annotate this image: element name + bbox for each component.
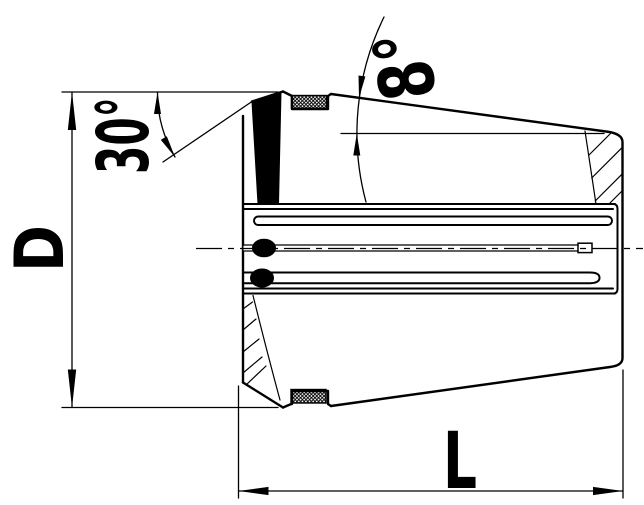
lip-hatch-5	[247, 366, 267, 385]
back-ring-boundary	[585, 131, 596, 204]
technical-drawing-canvas: D 30° 8° L	[0, 0, 644, 505]
lip-hatch-1	[243, 302, 253, 309]
diameter-label: D	[1, 225, 80, 272]
back-hatch-3	[595, 174, 622, 201]
back-hatch-4	[609, 191, 623, 205]
length-label: L	[443, 417, 477, 505]
dimension-chamfer-angle: 30°	[82, 92, 252, 174]
dimension-taper-angle: 8°	[341, 17, 604, 202]
front-slot-section-fill	[252, 93, 281, 205]
lip-inner-curve	[253, 296, 280, 401]
d-arrow-up	[68, 92, 76, 130]
back-hatch-2	[592, 147, 623, 178]
slot-lower	[244, 273, 600, 284]
back-hatch-1	[589, 133, 611, 155]
taper-arc-arrow-lower	[353, 134, 360, 156]
l-arrow-right	[593, 487, 623, 495]
slot-hole-lower	[251, 269, 274, 287]
taper-angle-label: 8°	[356, 26, 454, 106]
l-arrow-left	[239, 487, 269, 495]
collet-slots	[244, 217, 613, 288]
d-arrow-down	[68, 370, 76, 408]
chamfer-angle-label: 30°	[82, 97, 165, 174]
lip-hatch-2	[243, 319, 256, 330]
hatching	[243, 131, 623, 400]
collet-cross-section-drawing: D 30° 8° L	[0, 0, 644, 505]
lip-hatch-4	[243, 357, 262, 373]
seal-ring-top	[292, 96, 327, 109]
lip-hatch-3	[243, 339, 259, 352]
slot-upper	[254, 217, 612, 226]
chamfer-construction-line	[163, 102, 252, 163]
bottom-chamfer-edge	[243, 383, 283, 408]
